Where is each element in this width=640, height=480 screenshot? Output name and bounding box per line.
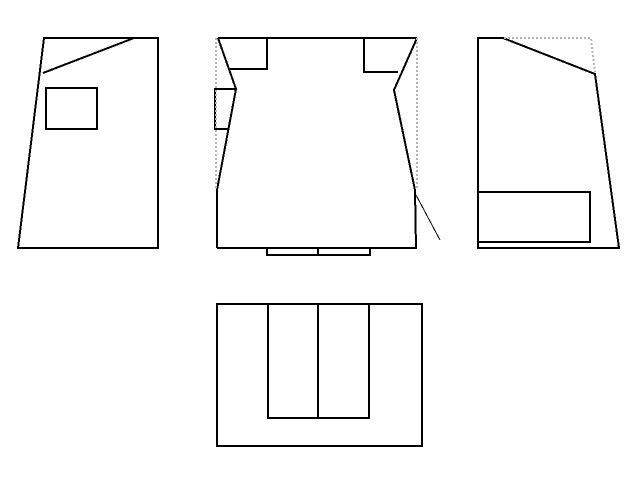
view-bottom bbox=[217, 304, 422, 446]
front-thin-diagonal bbox=[416, 195, 440, 240]
view-left-side bbox=[18, 38, 158, 248]
left-inner-rect bbox=[46, 88, 97, 129]
orthographic-views-drawing bbox=[0, 0, 640, 480]
drawing-canvas bbox=[0, 0, 640, 480]
view-front bbox=[215, 38, 440, 255]
view-right-side bbox=[478, 38, 619, 248]
left-diagonal-edge bbox=[43, 38, 134, 73]
left-outline bbox=[18, 38, 158, 248]
right-outline bbox=[478, 38, 619, 248]
bottom-outline bbox=[217, 304, 422, 446]
right-inner-rect bbox=[478, 192, 590, 242]
front-right-notch bbox=[364, 38, 398, 72]
front-left-notch bbox=[229, 38, 267, 69]
front-right-edge bbox=[394, 38, 417, 248]
